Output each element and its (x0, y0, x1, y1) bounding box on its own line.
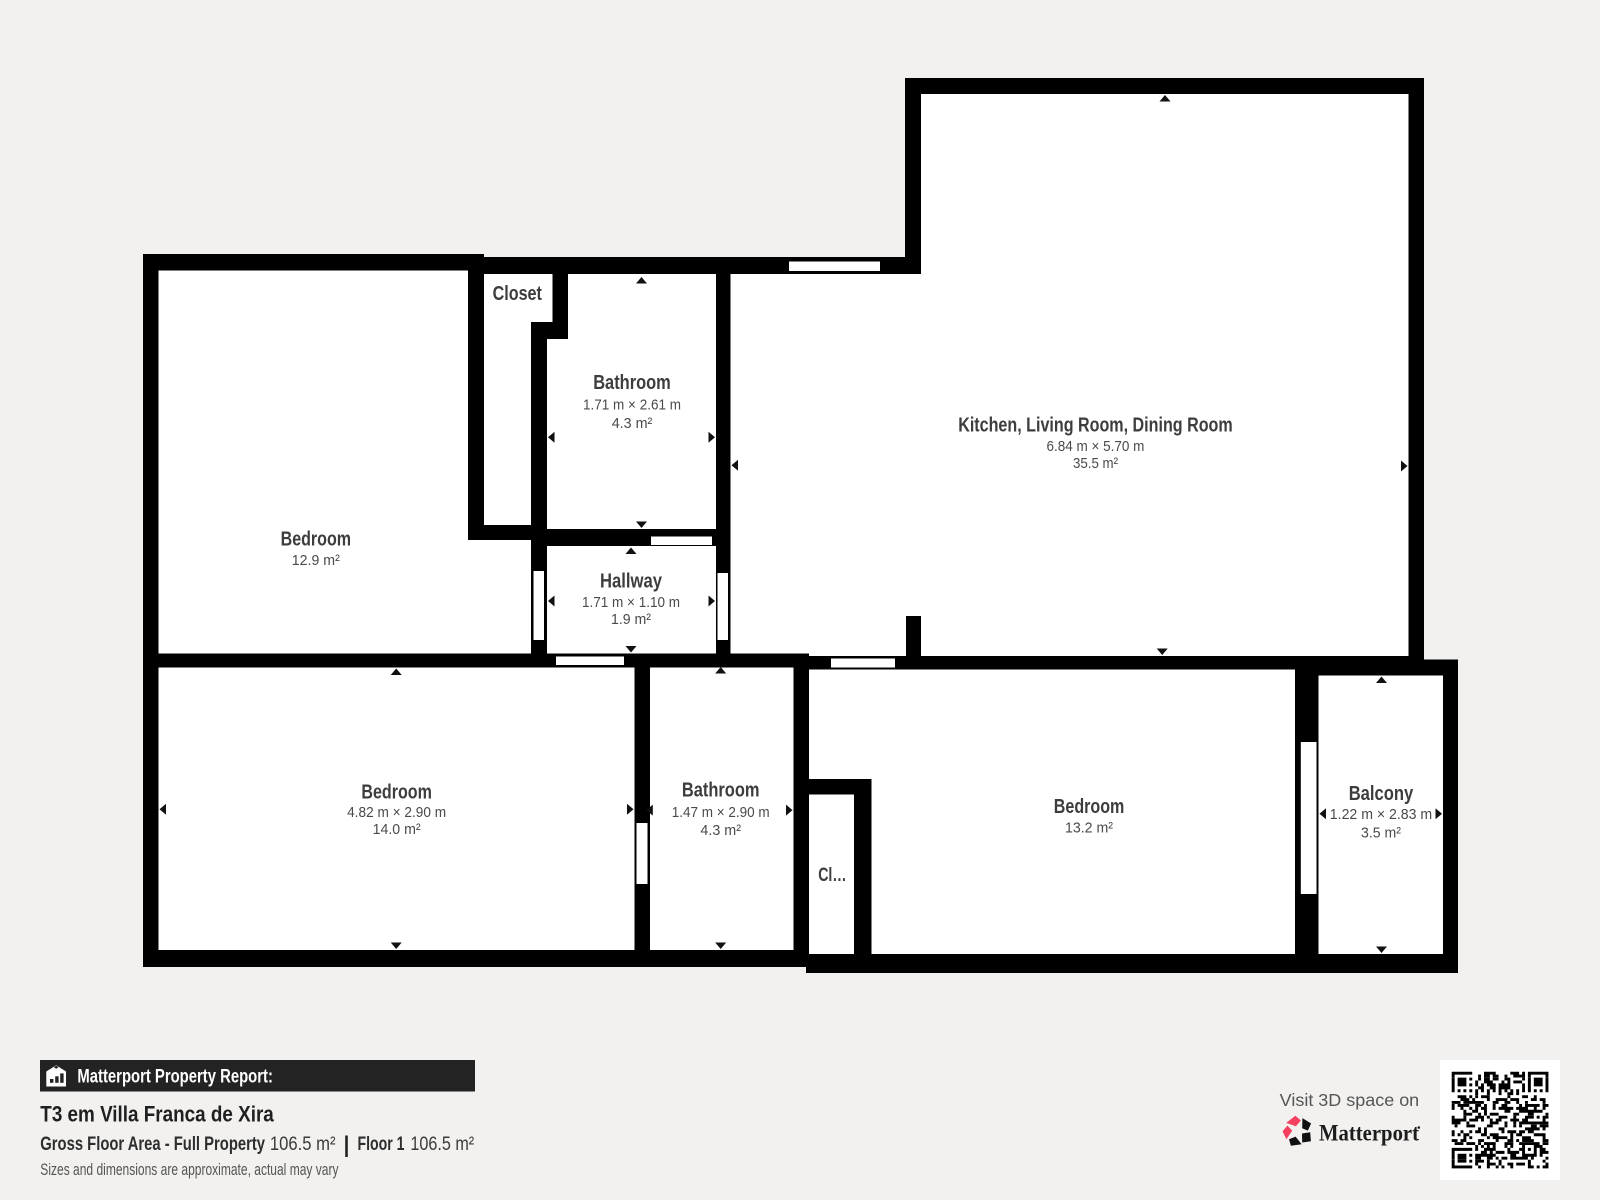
svg-text:Matterport: Matterport (1319, 1121, 1419, 1146)
svg-text:Gross Floor Area - Full Proper: Gross Floor Area - Full Property (40, 1133, 265, 1155)
svg-text:1.71 m × 2.61 m: 1.71 m × 2.61 m (583, 397, 681, 414)
svg-text:14.0 m²: 14.0 m² (373, 821, 421, 838)
svg-text:1.9 m²: 1.9 m² (611, 611, 651, 628)
svg-text:106.5 m²: 106.5 m² (270, 1133, 336, 1155)
svg-text:Sizes and dimensions are appro: Sizes and dimensions are approximate, ac… (40, 1160, 339, 1179)
svg-text:Balcony: Balcony (1349, 783, 1414, 805)
svg-text:Bathroom: Bathroom (682, 779, 760, 801)
svg-text:Matterport Property Report:: Matterport Property Report: (77, 1067, 273, 1088)
svg-text:106.5 m²: 106.5 m² (410, 1133, 474, 1155)
svg-text:13.2 m²: 13.2 m² (1065, 820, 1113, 837)
svg-text:1.71 m × 1.10 m: 1.71 m × 1.10 m (582, 594, 680, 611)
svg-text:Closet: Closet (493, 283, 543, 305)
svg-text:4.3 m²: 4.3 m² (700, 822, 741, 839)
svg-text:Bedroom: Bedroom (281, 528, 352, 550)
svg-text:T3 em Villa Franca de Xira: T3 em Villa Franca de Xira (40, 1101, 274, 1126)
svg-text:Bedroom: Bedroom (361, 781, 432, 803)
svg-text:Kitchen, Living Room, Dining R: Kitchen, Living Room, Dining Room (958, 415, 1232, 437)
svg-text:Bedroom: Bedroom (1054, 796, 1125, 818)
svg-text:6.84 m × 5.70 m: 6.84 m × 5.70 m (1047, 438, 1145, 455)
svg-text:Hallway: Hallway (600, 571, 663, 593)
svg-text:Cl…: Cl… (818, 865, 846, 886)
svg-text:35.5 m²: 35.5 m² (1073, 455, 1118, 472)
svg-text:4.82 m × 2.90 m: 4.82 m × 2.90 m (347, 804, 446, 821)
svg-text:4.3 m²: 4.3 m² (612, 415, 653, 432)
svg-text:1.47 m × 2.90 m: 1.47 m × 2.90 m (672, 804, 770, 821)
svg-text:12.9 m²: 12.9 m² (292, 552, 340, 569)
svg-text:1.22 m × 2.83 m: 1.22 m × 2.83 m (1330, 806, 1432, 823)
svg-text:Floor 1: Floor 1 (358, 1133, 405, 1155)
svg-text:Bathroom: Bathroom (593, 372, 671, 394)
svg-text:3.5 m²: 3.5 m² (1361, 825, 1401, 842)
svg-text:Visit 3D space on: Visit 3D space on (1280, 1090, 1420, 1110)
